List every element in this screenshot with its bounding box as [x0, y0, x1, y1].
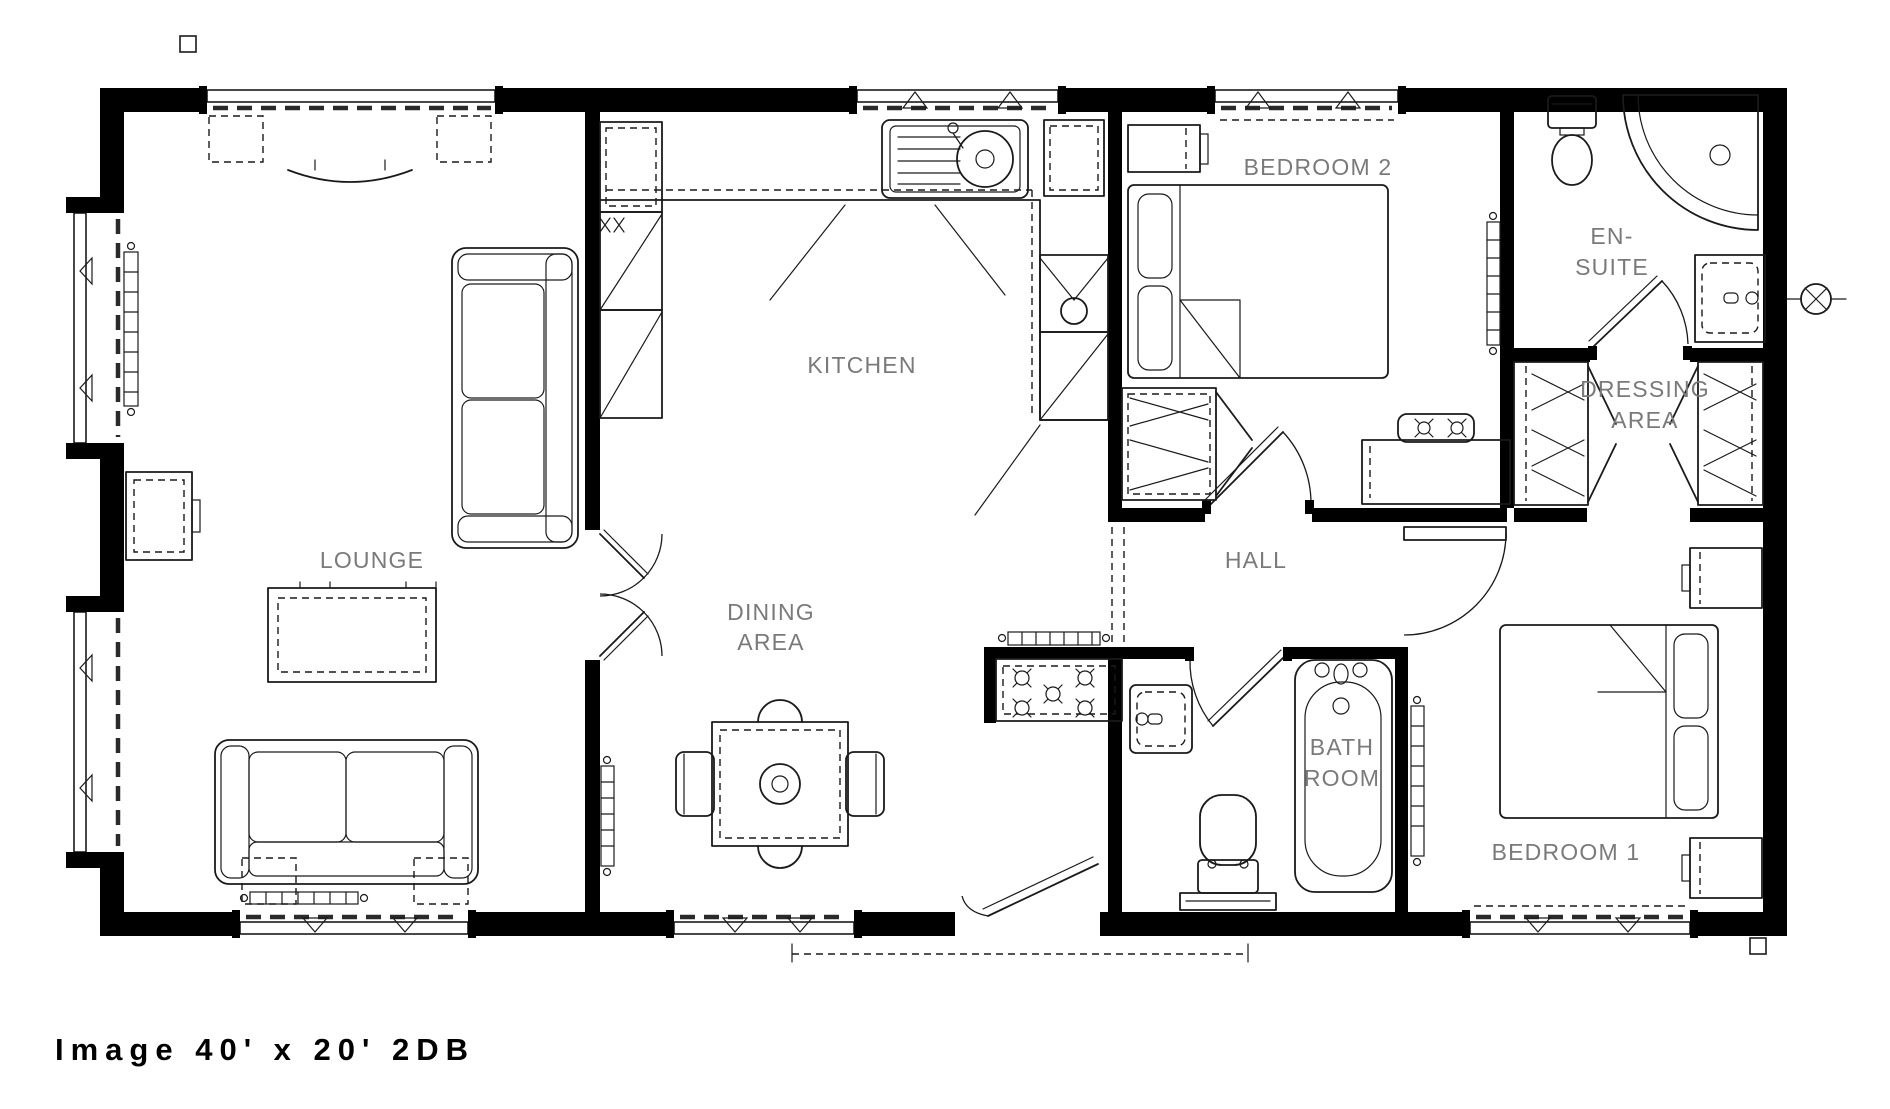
floor-plan-page: LOUNGE KITCHEN DINING AREA HALL BATH ROO…: [0, 0, 1890, 1109]
dining-furniture: [601, 700, 884, 876]
sofa-right: [452, 248, 578, 548]
radiator: [124, 243, 138, 416]
ensuite-door: [1588, 276, 1692, 360]
duvet-fold: [1598, 625, 1666, 692]
curtain-pelmet: [437, 116, 491, 162]
toilet: [1180, 795, 1276, 910]
sofa-bottom: [215, 740, 478, 884]
pillow: [1138, 194, 1172, 278]
bedroom2-furniture: [1122, 125, 1510, 504]
bedroom2-window: [1207, 86, 1406, 120]
floor-plan-svg: LOUNGE KITCHEN DINING AREA HALL BATH ROO…: [0, 0, 1890, 1109]
radiator: [999, 632, 1110, 645]
bedroom2-door: [1202, 427, 1314, 514]
lounge-dining-double-door: [600, 530, 662, 660]
quadrant-shower: [1623, 95, 1758, 230]
curtain-pelmet: [209, 116, 263, 162]
tall-units: [600, 122, 662, 418]
room-label-bathroom-2: ROOM: [1304, 765, 1380, 791]
curtain-pelmet: [414, 858, 468, 904]
pillow: [1138, 286, 1172, 370]
walls: [100, 36, 1787, 954]
plan-title: Image 40' x 20' 2DB: [55, 1032, 475, 1067]
drain-icon: [1333, 698, 1349, 714]
lounge-left-window-2: [66, 596, 118, 868]
dressing-table: [1362, 414, 1510, 504]
vent-triangle-icon: [998, 92, 1022, 108]
kitchen-glazed-door: [849, 86, 1066, 114]
chair: [758, 846, 802, 868]
room-label-bedroom1: BEDROOM 1: [1492, 839, 1641, 865]
room-label-dressing-2: AREA: [1611, 407, 1678, 433]
room-label-lounge: LOUNGE: [320, 547, 424, 573]
double-bed: [1500, 625, 1718, 818]
tap-icon: [1136, 713, 1148, 725]
chair: [676, 752, 714, 816]
bedroom1-bottom-window: [1462, 906, 1698, 938]
lounge-top-window: [199, 86, 503, 182]
tap-icon: [948, 123, 958, 133]
tv-unit: [288, 170, 412, 182]
basin: [1695, 255, 1765, 342]
room-label-ensuite-2: SUITE: [1575, 254, 1649, 280]
radiator: [1487, 213, 1500, 355]
pillow: [1674, 726, 1708, 810]
room-label-dining-2: AREA: [737, 629, 804, 655]
radiator: [601, 757, 614, 876]
coffee-table: [268, 582, 436, 682]
oven-unit: [1040, 120, 1108, 420]
dining-bottom-window: [666, 910, 862, 938]
spotlight-icons: [1013, 669, 1094, 717]
lounge-bottom-window: [232, 858, 476, 938]
room-label-bedroom2: BEDROOM 2: [1244, 154, 1393, 180]
wall-light-icon: [1787, 284, 1846, 314]
bedside-table: [1682, 548, 1762, 608]
room-label-kitchen: KITCHEN: [807, 352, 916, 378]
worktop-dashed: [606, 190, 1032, 414]
bedside-table: [1128, 125, 1208, 172]
double-bed: [1128, 185, 1388, 378]
hall-airing-cupboard: [996, 659, 1122, 721]
room-label-ensuite-1: EN-: [1590, 223, 1633, 249]
kitchen-units: [600, 120, 1110, 645]
bathroom-door: [1185, 647, 1292, 726]
room-label-hall: HALL: [1225, 547, 1287, 573]
vent-triangle-icon: [903, 92, 927, 108]
room-label-bathroom-1: BATH: [1310, 734, 1374, 760]
tap-icon: [1353, 663, 1367, 677]
ensuite-fixtures: [1548, 95, 1846, 342]
basin: [1130, 685, 1192, 753]
pillow: [1674, 634, 1708, 718]
radiator: [1411, 697, 1424, 866]
shower-drain-icon: [1710, 145, 1730, 165]
exterior-marker: [180, 36, 196, 52]
bedside-table: [1682, 838, 1762, 898]
radiator: [241, 892, 368, 904]
chair: [846, 752, 884, 816]
room-label-dressing-1: DRESSING: [1580, 376, 1710, 402]
bedroom1-door: [1404, 527, 1506, 635]
duvet-fold: [1180, 300, 1240, 378]
dining-table: [676, 700, 884, 868]
side-table: [126, 472, 200, 560]
lounge-left-window-1: [66, 197, 118, 459]
chair: [758, 700, 802, 722]
tap-icon: [1746, 292, 1758, 304]
room-label-dining-1: DINING: [727, 599, 815, 625]
wall-vent-icon: [600, 218, 624, 232]
sink-drainer: [882, 120, 1028, 198]
tap-icon: [1315, 663, 1329, 677]
exterior-marker: [1750, 938, 1766, 954]
kitchen-hall-threshold: [1112, 527, 1124, 645]
